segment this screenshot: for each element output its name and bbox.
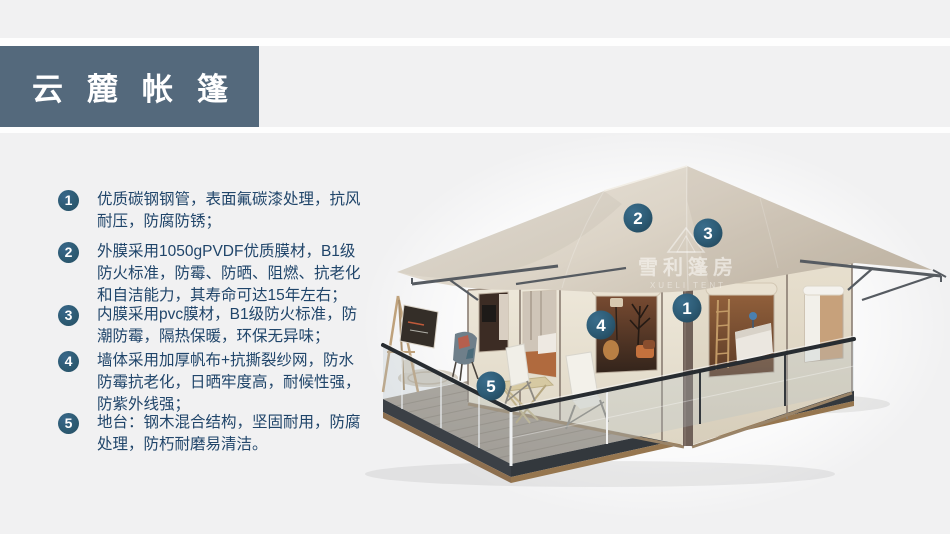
callout-marker-4: 4: [587, 311, 616, 340]
callout-marker-1: 1: [673, 294, 702, 323]
svg-text:4: 4: [596, 316, 606, 335]
svg-text:3: 3: [703, 224, 712, 243]
front-window-small: [479, 292, 508, 352]
callout-marker-3: 3: [694, 219, 723, 248]
ground-shadow: [365, 461, 835, 487]
watermark-en-text: XUELI TENT: [650, 281, 726, 290]
svg-text:1: 1: [682, 299, 691, 318]
front-door-opening: [523, 290, 556, 377]
promo-slide: 云麓帐篷 1 优质碳钢钢管，表面氟碳漆处理，抗风耐压，防腐防锈； 2 外膜采用1…: [0, 0, 950, 534]
tent-illustration: 雪利篷房 XUELI TENT: [0, 0, 950, 534]
callout-marker-2: 2: [624, 204, 653, 233]
svg-text:5: 5: [486, 377, 495, 396]
svg-text:2: 2: [633, 209, 642, 228]
watermark-cn-text: 雪利篷房: [638, 255, 738, 279]
easel-canvas: [400, 305, 438, 348]
callout-marker-5: 5: [477, 372, 506, 401]
